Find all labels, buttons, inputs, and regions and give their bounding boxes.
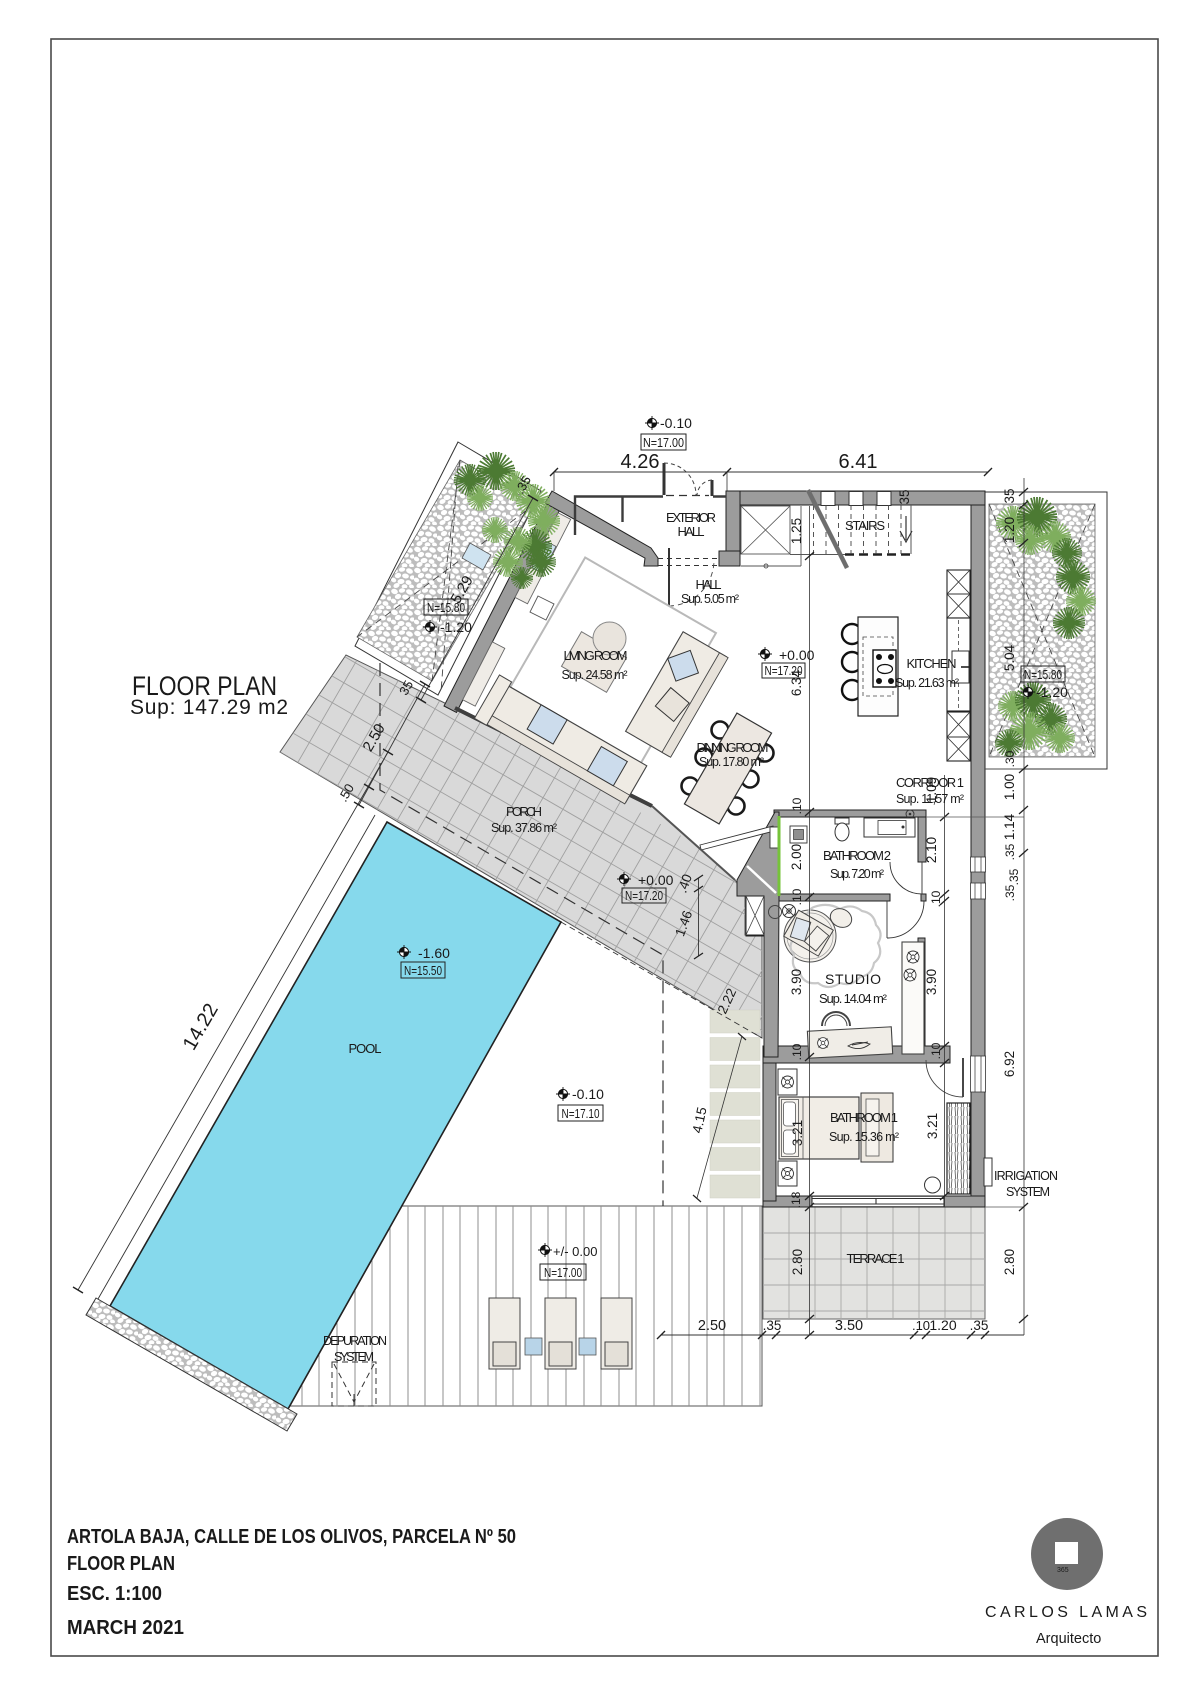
svg-text:2.50: 2.50	[698, 1318, 726, 1334]
svg-text:LIVING ROOM: LIVING ROOM	[564, 648, 628, 663]
svg-text:2.80: 2.80	[1002, 1249, 1017, 1275]
svg-text:N=17.10: N=17.10	[562, 1107, 600, 1121]
svg-text:3.90: 3.90	[789, 969, 804, 995]
svg-text:.35: .35	[970, 1318, 989, 1333]
svg-text:2.80: 2.80	[790, 1249, 805, 1275]
svg-text:BATHROOM 2: BATHROOM 2	[823, 848, 891, 863]
svg-text:Arquitecto: Arquitecto	[1036, 1631, 1101, 1647]
svg-text:Sup. 17.80 m²: Sup. 17.80 m²	[699, 755, 764, 769]
svg-text:N=17.00: N=17.00	[544, 1266, 582, 1280]
svg-text:1.00: 1.00	[1002, 774, 1017, 800]
svg-text:N=17.00: N=17.00	[643, 436, 684, 450]
svg-text:Sup. 21.63 m²: Sup. 21.63 m²	[895, 676, 959, 690]
svg-text:N=17.20: N=17.20	[765, 664, 803, 678]
svg-text:ESC. 1:100: ESC. 1:100	[67, 1583, 162, 1605]
svg-text:BATHROOM 1: BATHROOM 1	[830, 1110, 898, 1125]
svg-text:6.92: 6.92	[1002, 1051, 1017, 1077]
svg-text:.35: .35	[763, 1318, 782, 1333]
svg-text:EXTERIOR: EXTERIOR	[666, 510, 716, 525]
svg-text:CARLOS LAMAS: CARLOS LAMAS	[985, 1604, 1151, 1621]
svg-text:Sup. 14.04 m²: Sup. 14.04 m²	[819, 991, 888, 1006]
svg-text:.35: .35	[1007, 868, 1021, 885]
svg-text:6.41: 6.41	[839, 451, 878, 473]
svg-text:.10: .10	[929, 1042, 943, 1059]
svg-text:-1.20: -1.20	[440, 619, 472, 635]
svg-text:.10: .10	[929, 890, 943, 907]
svg-text:3.21: 3.21	[925, 1113, 940, 1139]
svg-text:N=15.50: N=15.50	[404, 964, 442, 978]
svg-text:4.26: 4.26	[621, 451, 660, 473]
svg-text:ARTOLA BAJA, CALLE DE LOS OLIV: ARTOLA BAJA, CALLE DE LOS OLIVOS, PARCEL…	[67, 1526, 516, 1548]
svg-text:.30: .30	[1003, 750, 1017, 767]
svg-text:1.20: 1.20	[929, 1317, 956, 1333]
svg-text:3.90: 3.90	[924, 969, 939, 995]
svg-text:CORRIDOR 1: CORRIDOR 1	[896, 775, 964, 790]
svg-text:Sup. 37.86 m²: Sup. 37.86 m²	[491, 821, 557, 835]
svg-text:.18: .18	[789, 1191, 803, 1208]
svg-text:Sup. 5.05 m²: Sup. 5.05 m²	[681, 592, 739, 606]
svg-text:3.21: 3.21	[790, 1120, 805, 1146]
svg-text:PORCH: PORCH	[506, 804, 542, 819]
svg-text:5.04: 5.04	[1002, 644, 1017, 671]
svg-text:N=17.20: N=17.20	[625, 889, 663, 903]
svg-text:Sup. 15.36 m²: Sup. 15.36 m²	[829, 1130, 899, 1144]
svg-text:POOL: POOL	[349, 1041, 382, 1056]
svg-text:Sup: 147.29 m2: Sup: 147.29 m2	[130, 696, 288, 719]
svg-text:+/- 0.00: +/- 0.00	[553, 1244, 597, 1259]
svg-text:1.20: 1.20	[1002, 517, 1017, 543]
svg-text:-0.10: -0.10	[660, 415, 692, 431]
svg-text:HALL: HALL	[678, 524, 705, 539]
svg-text:.10: .10	[790, 1043, 804, 1060]
svg-text:SYSTEM: SYSTEM	[1006, 1185, 1050, 1199]
svg-text:N=15.80: N=15.80	[1024, 668, 1062, 682]
svg-text:2.10: 2.10	[924, 837, 939, 863]
svg-text:1.14: 1.14	[1002, 813, 1017, 840]
svg-text:.35: .35	[1003, 884, 1017, 901]
svg-text:Sup. 11,57 m²: Sup. 11,57 m²	[896, 792, 964, 806]
svg-text:-1.20: -1.20	[1036, 684, 1068, 700]
svg-text:DINNING ROOM: DINNING ROOM	[697, 740, 769, 755]
svg-text:35: 35	[1002, 488, 1017, 503]
svg-text:365: 365	[1057, 1567, 1069, 1574]
svg-text:HALL: HALL	[696, 577, 722, 592]
svg-text:FLOOR PLAN: FLOOR PLAN	[67, 1553, 175, 1575]
svg-text:TERRACE 1: TERRACE 1	[847, 1251, 905, 1266]
svg-text:1.25: 1.25	[789, 518, 804, 544]
svg-text:SYSTEM: SYSTEM	[334, 1350, 374, 1364]
svg-text:-0.10: -0.10	[572, 1086, 604, 1102]
svg-text:.35: .35	[1003, 843, 1017, 860]
svg-text:DEPURATION: DEPURATION	[323, 1334, 387, 1348]
svg-text:KITCHEN: KITCHEN	[907, 656, 957, 671]
svg-text:MARCH 2021: MARCH 2021	[67, 1617, 184, 1639]
svg-text:N=15.80: N=15.80	[427, 601, 465, 615]
svg-text:35: 35	[897, 489, 912, 504]
svg-text:2.00: 2.00	[789, 844, 804, 870]
svg-text:IRRIGATION: IRRIGATION	[994, 1169, 1058, 1183]
svg-text:.10: .10	[790, 888, 804, 905]
svg-text:Sup. 24.58 m²: Sup. 24.58 m²	[562, 668, 628, 682]
svg-text:Sup. 7.20 m²: Sup. 7.20 m²	[830, 867, 884, 881]
svg-text:.10: .10	[790, 797, 804, 814]
svg-text:STUDIO: STUDIO	[825, 971, 881, 987]
svg-text:STAIRS: STAIRS	[845, 518, 885, 533]
svg-text:3.50: 3.50	[835, 1318, 863, 1334]
svg-text:+0.00: +0.00	[779, 647, 815, 663]
svg-text:-1.60: -1.60	[418, 945, 450, 961]
svg-text:+0.00: +0.00	[638, 872, 674, 888]
svg-text:.10: .10	[912, 1318, 930, 1333]
